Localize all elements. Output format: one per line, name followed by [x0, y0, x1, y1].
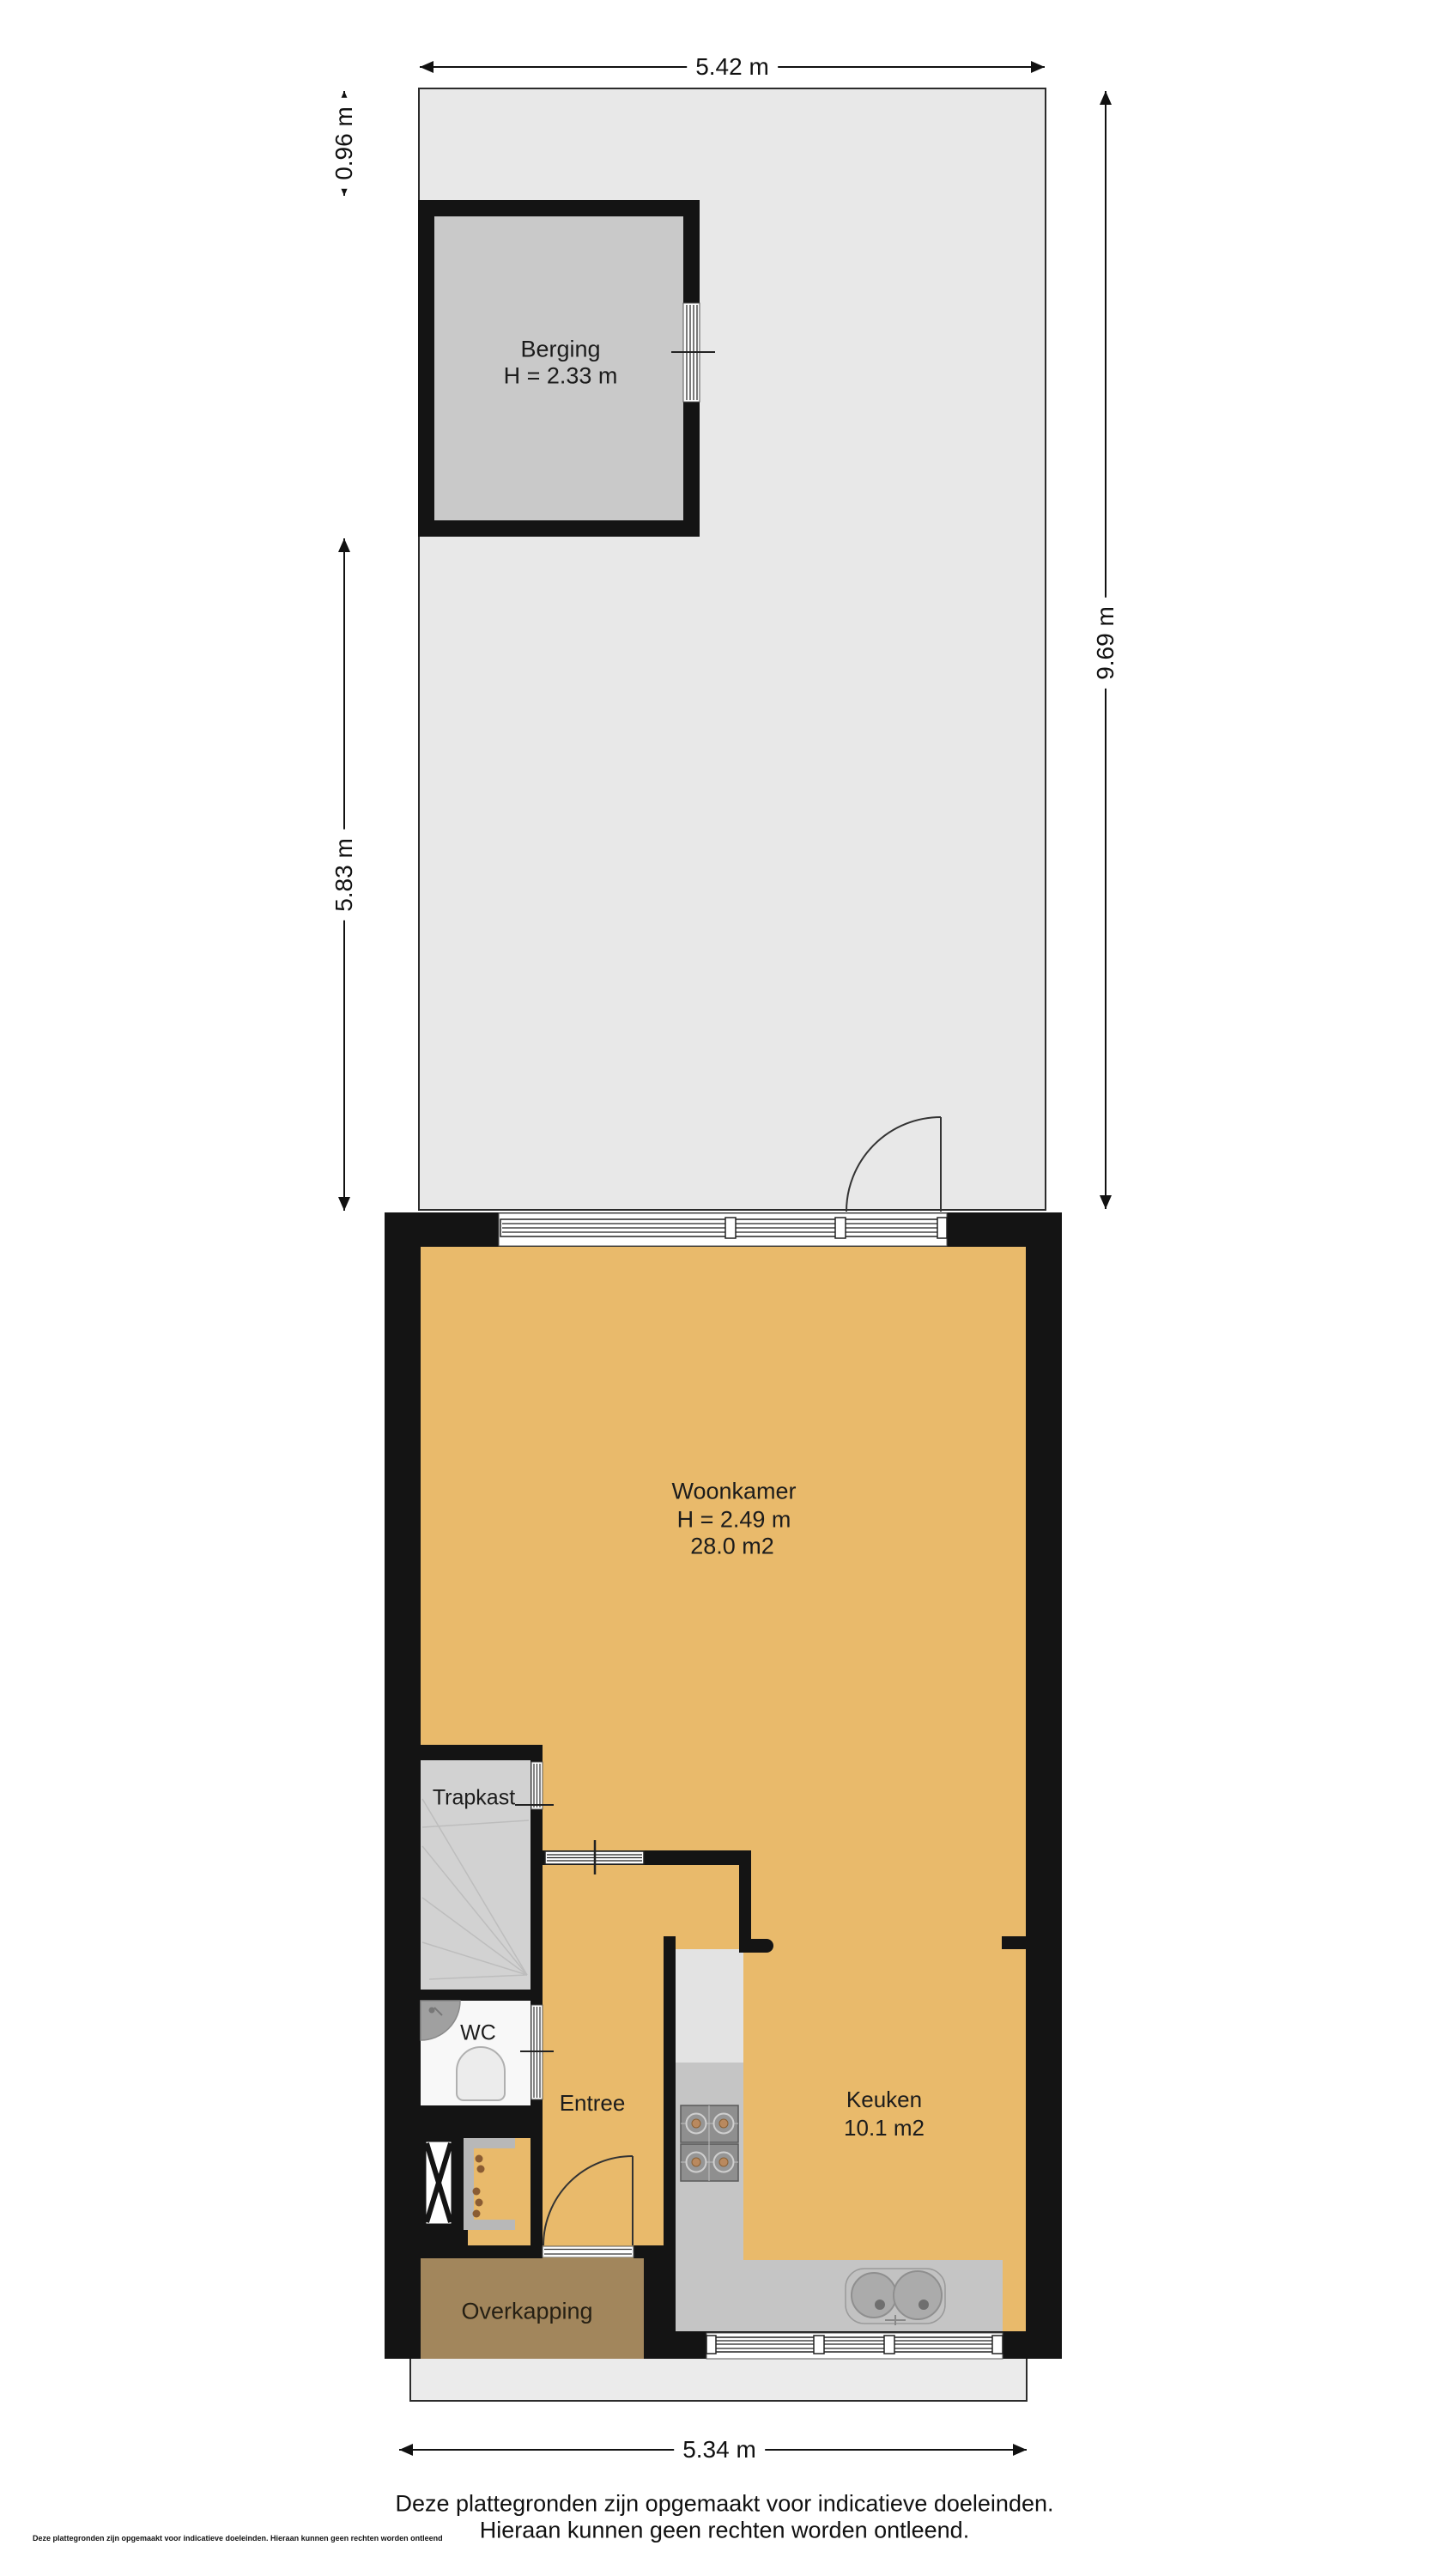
disclaimer-line1: Deze plattegronden zijn opgemaakt voor i…	[395, 2490, 1053, 2517]
entry-cabinet-block	[421, 2138, 468, 2258]
wall-entree-bottom-right	[634, 2245, 676, 2258]
disclaimer-line2: Hieraan kunnen geen rechten worden ontle…	[480, 2517, 969, 2543]
wall-inner-vertical	[530, 1745, 543, 2258]
wc-floor	[421, 2001, 530, 2105]
overkapping-label: Overkapping	[461, 2298, 592, 2324]
disclaimer-fine-print: Deze plattegronden zijn opgemaakt voor i…	[33, 2534, 443, 2543]
floorplan-canvas: Berging H = 2.33 m Woonkamer H = 2.49 m …	[0, 0, 1449, 2576]
berging-height-label: H = 2.33 m	[504, 362, 618, 389]
trapkast-label: Trapkast	[433, 1786, 515, 1811]
dimension-bottom-label: 5.34 m	[674, 2436, 765, 2464]
coat-rack-frame-left	[464, 2138, 474, 2230]
kitchen-counter-mid	[676, 2063, 743, 2260]
woonkamer-label: Woonkamer	[671, 1478, 796, 1504]
wall-kitchen-left	[664, 1936, 676, 2245]
wall-trapkast-top	[418, 1745, 543, 1760]
keuken-label: Keuken	[846, 2087, 922, 2113]
dimension-left-upper-label: 0.96 m	[330, 98, 358, 189]
wall-wc-bottom	[385, 2105, 543, 2138]
wall-left	[385, 1212, 421, 2359]
wall-divider-vertical	[739, 1850, 751, 1939]
pavement-strip	[409, 2359, 1028, 2402]
wall-stub-left	[739, 1939, 773, 1953]
wall-stub-right	[1002, 1936, 1026, 1949]
wall-entree-bottom-left	[421, 2245, 543, 2258]
entree-label: Entree	[560, 2091, 626, 2117]
dimension-right-label: 9.69 m	[1092, 598, 1119, 689]
keuken-area-label: 10.1 m2	[844, 2116, 925, 2142]
dimension-left-lower-label: 5.83 m	[330, 829, 358, 920]
kitchen-counter-bottom	[676, 2260, 1003, 2331]
wall-top	[385, 1212, 1062, 1247]
kitchen-counter-upper	[676, 1949, 743, 2063]
dimension-top-label: 5.42 m	[687, 53, 778, 81]
berging-label: Berging	[520, 336, 600, 362]
wall-kitchen-bottom	[644, 2331, 1026, 2359]
wall-stairs-wc	[385, 1990, 543, 2001]
woonkamer-area-label: 28.0 m2	[690, 1533, 774, 1559]
coat-rack-frame-bottom	[464, 2220, 515, 2230]
woonkamer-height-label: H = 2.49 m	[677, 1506, 791, 1533]
wall-right	[1026, 1212, 1062, 2359]
wall-divider-horizontal	[543, 1850, 751, 1865]
wc-label: WC	[460, 2021, 496, 2046]
